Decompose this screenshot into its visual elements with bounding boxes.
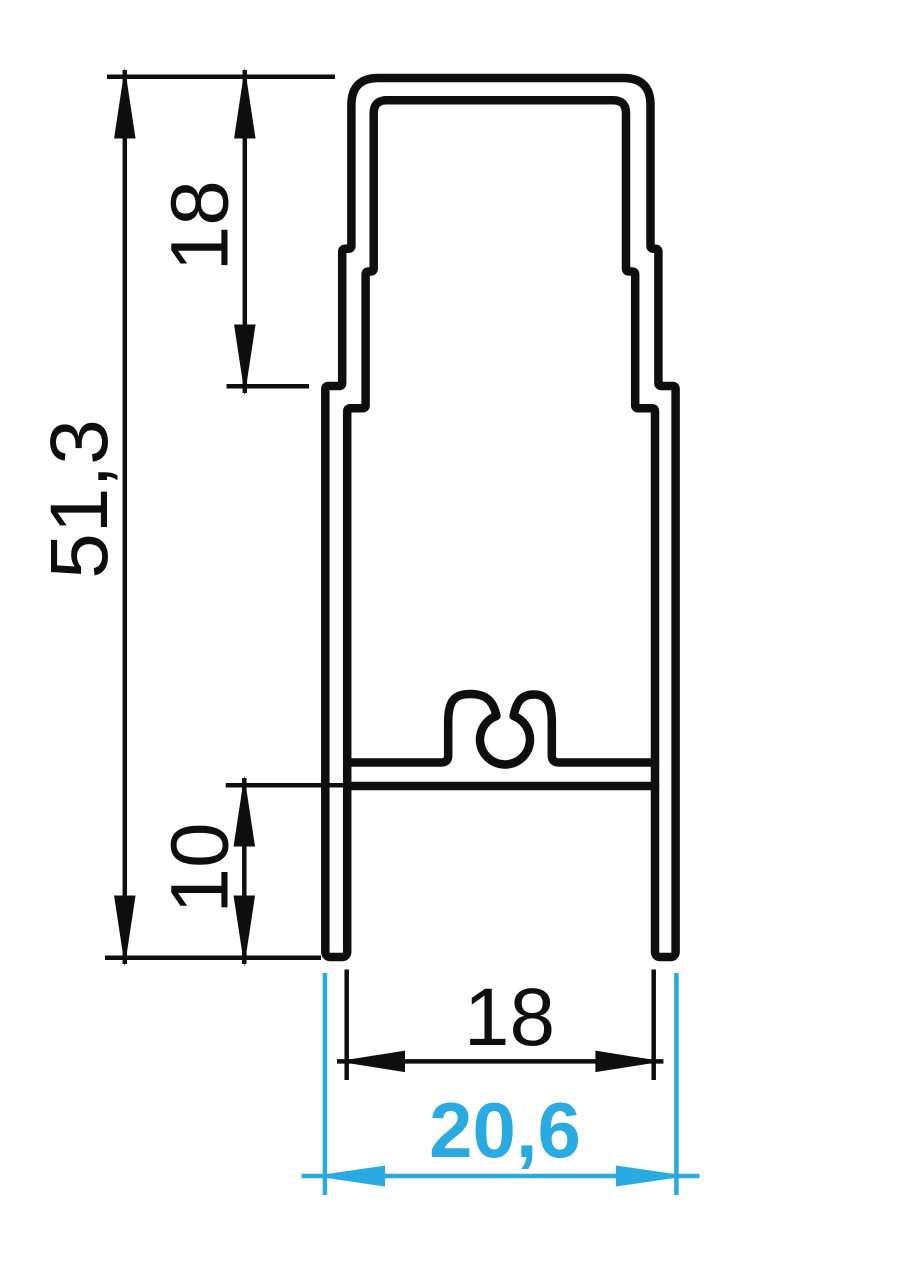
svg-text:51,3: 51,3 [34, 419, 125, 579]
svg-text:18: 18 [464, 972, 555, 1063]
svg-text:18: 18 [155, 180, 246, 271]
svg-text:20,6: 20,6 [429, 1086, 581, 1174]
svg-text:10: 10 [155, 822, 246, 913]
